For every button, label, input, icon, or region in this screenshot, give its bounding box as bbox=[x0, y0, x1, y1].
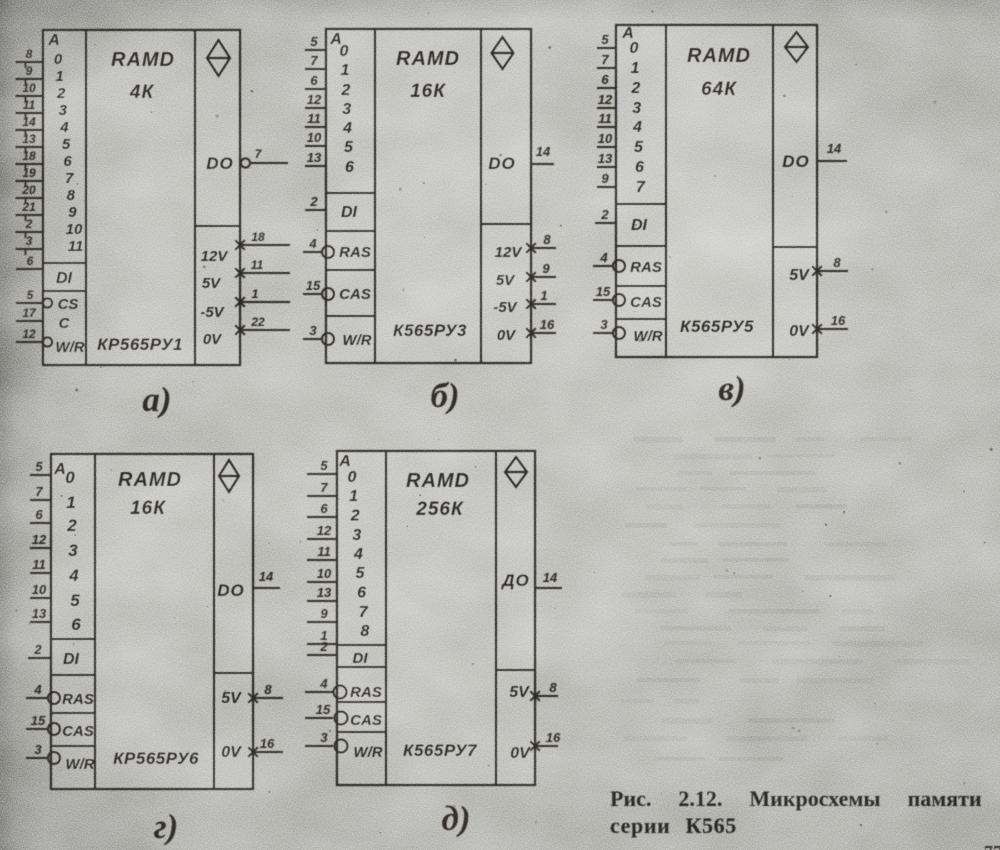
svg-text:5: 5 bbox=[62, 136, 71, 153]
svg-text:RAS: RAS bbox=[630, 259, 662, 276]
svg-text:16К: 16К bbox=[130, 498, 166, 519]
svg-text:9: 9 bbox=[542, 261, 550, 276]
svg-text:а): а) bbox=[142, 380, 171, 419]
svg-text:64К: 64К bbox=[701, 79, 737, 100]
svg-text:A: A bbox=[338, 453, 351, 470]
svg-text:3: 3 bbox=[342, 101, 351, 118]
svg-text:RAMD: RAMD bbox=[118, 469, 182, 491]
svg-text:12: 12 bbox=[598, 92, 613, 107]
svg-text:0: 0 bbox=[340, 43, 349, 60]
svg-text:3: 3 bbox=[26, 234, 33, 248]
svg-text:CAS: CAS bbox=[339, 286, 371, 303]
svg-text:7: 7 bbox=[601, 52, 609, 67]
svg-text:16: 16 bbox=[260, 736, 275, 751]
svg-text:6: 6 bbox=[310, 73, 318, 88]
svg-text:12V: 12V bbox=[201, 248, 230, 265]
svg-text:A: A bbox=[47, 32, 60, 49]
svg-text:13: 13 bbox=[32, 606, 47, 621]
svg-text:RAS: RAS bbox=[62, 691, 94, 708]
svg-text:2: 2 bbox=[56, 85, 66, 102]
svg-text:2: 2 bbox=[630, 80, 640, 97]
svg-text:8: 8 bbox=[67, 187, 76, 204]
svg-text:КР565РУ1: КР565РУ1 bbox=[97, 335, 183, 354]
svg-text:DO: DO bbox=[782, 152, 810, 171]
svg-text:6: 6 bbox=[357, 585, 366, 602]
svg-text:2: 2 bbox=[600, 207, 609, 222]
svg-text:11: 11 bbox=[251, 258, 264, 272]
svg-text:3: 3 bbox=[309, 323, 317, 338]
svg-text:1: 1 bbox=[540, 288, 547, 303]
svg-text:3: 3 bbox=[59, 102, 68, 119]
svg-text:W/R: W/R bbox=[342, 332, 371, 349]
svg-text:3: 3 bbox=[632, 100, 641, 117]
svg-text:13: 13 bbox=[317, 585, 332, 600]
svg-text:12: 12 bbox=[307, 92, 322, 107]
svg-text:К565РУ3: К565РУ3 bbox=[393, 321, 467, 340]
svg-text:4: 4 bbox=[59, 119, 69, 136]
svg-text:2: 2 bbox=[25, 217, 33, 231]
svg-text:W/R: W/R bbox=[55, 339, 84, 356]
svg-text:Рис. 2.12. Микросхемы памяти: Рис. 2.12. Микросхемы памяти bbox=[610, 786, 982, 811]
svg-text:DO: DO bbox=[488, 154, 516, 173]
svg-text:7: 7 bbox=[636, 179, 646, 196]
svg-text:8: 8 bbox=[549, 680, 557, 695]
svg-text:6: 6 bbox=[345, 159, 354, 176]
svg-text:2: 2 bbox=[309, 194, 318, 209]
svg-text:8: 8 bbox=[833, 255, 841, 270]
svg-text:22: 22 bbox=[250, 315, 265, 329]
svg-text:7: 7 bbox=[310, 53, 318, 68]
svg-text:11: 11 bbox=[307, 111, 321, 126]
svg-text:6: 6 bbox=[35, 507, 43, 522]
svg-text:серии К565: серии К565 bbox=[610, 813, 737, 838]
svg-text:2: 2 bbox=[319, 639, 328, 654]
svg-text:DI: DI bbox=[353, 650, 369, 667]
svg-text:3: 3 bbox=[68, 541, 78, 560]
svg-text:RAS: RAS bbox=[339, 244, 371, 261]
svg-text:11: 11 bbox=[23, 98, 36, 112]
svg-text:К565РУ5: К565РУ5 bbox=[680, 317, 754, 336]
svg-text:0V: 0V bbox=[510, 745, 531, 762]
svg-text:0V: 0V bbox=[497, 327, 517, 344]
svg-text:д): д) bbox=[441, 799, 470, 838]
svg-text:8: 8 bbox=[264, 682, 272, 697]
svg-text:5: 5 bbox=[27, 288, 34, 302]
svg-text:RAS: RAS bbox=[350, 684, 382, 701]
svg-text:W/R: W/R bbox=[353, 744, 382, 761]
svg-text:5: 5 bbox=[320, 458, 328, 473]
svg-text:DI: DI bbox=[341, 204, 358, 221]
svg-text:5: 5 bbox=[634, 139, 644, 156]
svg-text:RAMD: RAMD bbox=[406, 470, 470, 492]
svg-text:11: 11 bbox=[598, 111, 612, 126]
svg-text:10: 10 bbox=[317, 566, 332, 581]
svg-text:12: 12 bbox=[22, 327, 36, 341]
svg-text:14: 14 bbox=[536, 144, 551, 159]
svg-text:13: 13 bbox=[598, 151, 613, 166]
svg-text:7: 7 bbox=[320, 480, 328, 495]
svg-text:1: 1 bbox=[340, 62, 349, 79]
svg-text:11: 11 bbox=[32, 557, 46, 572]
svg-text:12: 12 bbox=[317, 523, 332, 538]
svg-text:7: 7 bbox=[35, 484, 43, 499]
svg-text:10: 10 bbox=[32, 582, 47, 597]
svg-text:A: A bbox=[53, 461, 66, 478]
svg-text:5: 5 bbox=[356, 565, 366, 582]
svg-text:15: 15 bbox=[596, 284, 611, 299]
svg-text:DI: DI bbox=[63, 651, 80, 668]
svg-text:КР565РУ6: КР565РУ6 bbox=[113, 749, 199, 768]
svg-text:18: 18 bbox=[251, 230, 265, 244]
svg-text:0V: 0V bbox=[203, 331, 223, 348]
svg-text:6: 6 bbox=[27, 254, 34, 268]
svg-text:4: 4 bbox=[319, 676, 328, 691]
svg-text:15: 15 bbox=[306, 278, 321, 293]
svg-text:5V: 5V bbox=[202, 275, 222, 292]
svg-text:10: 10 bbox=[598, 131, 613, 146]
svg-text:-5V: -5V bbox=[200, 304, 225, 321]
svg-text:2: 2 bbox=[33, 642, 42, 657]
svg-text:0V: 0V bbox=[789, 323, 810, 340]
svg-text:3: 3 bbox=[600, 317, 608, 332]
svg-text:11: 11 bbox=[68, 238, 84, 255]
svg-text:4: 4 bbox=[353, 546, 363, 563]
svg-text:5: 5 bbox=[601, 32, 609, 47]
svg-text:DO: DO bbox=[206, 154, 234, 173]
svg-text:4: 4 bbox=[342, 120, 352, 137]
svg-text:5: 5 bbox=[35, 459, 43, 474]
svg-text:1: 1 bbox=[66, 493, 75, 512]
svg-text:12: 12 bbox=[32, 532, 47, 547]
svg-text:б): б) bbox=[430, 376, 459, 415]
svg-text:16: 16 bbox=[546, 730, 561, 745]
svg-text:ДО: ДО bbox=[500, 571, 530, 590]
svg-text:8: 8 bbox=[543, 232, 551, 247]
svg-text:CAS: CAS bbox=[62, 723, 94, 740]
svg-text:16К: 16К bbox=[410, 81, 446, 102]
svg-text:7: 7 bbox=[65, 170, 74, 187]
svg-text:RAMD: RAMD bbox=[111, 49, 175, 71]
svg-text:9: 9 bbox=[68, 204, 77, 221]
svg-text:4: 4 bbox=[33, 682, 42, 697]
svg-text:4: 4 bbox=[599, 250, 608, 265]
svg-text:W/R: W/R bbox=[633, 328, 662, 345]
svg-text:5V: 5V bbox=[221, 690, 242, 707]
svg-text:6: 6 bbox=[71, 615, 81, 634]
svg-text:0: 0 bbox=[630, 40, 639, 57]
svg-text:0: 0 bbox=[54, 51, 63, 68]
svg-text:0: 0 bbox=[348, 469, 357, 486]
svg-text:5: 5 bbox=[310, 34, 318, 49]
svg-text:0: 0 bbox=[65, 468, 75, 487]
svg-text:1: 1 bbox=[55, 68, 63, 85]
svg-text:г): г) bbox=[154, 807, 179, 846]
svg-text:19: 19 bbox=[22, 166, 36, 180]
svg-text:8: 8 bbox=[26, 47, 33, 61]
svg-text:14: 14 bbox=[543, 570, 558, 585]
svg-text:0V: 0V bbox=[221, 744, 242, 761]
svg-text:DI: DI bbox=[631, 217, 648, 234]
svg-text:6: 6 bbox=[635, 159, 644, 176]
svg-text:15: 15 bbox=[316, 702, 331, 717]
svg-text:13: 13 bbox=[22, 132, 36, 146]
svg-text:16: 16 bbox=[540, 317, 555, 332]
svg-text:4: 4 bbox=[308, 236, 317, 251]
svg-text:CS: CS bbox=[58, 296, 79, 313]
svg-text:5V: 5V bbox=[496, 272, 516, 289]
svg-text:10: 10 bbox=[66, 221, 83, 238]
svg-text:4: 4 bbox=[632, 119, 642, 136]
svg-text:77: 77 bbox=[984, 842, 1000, 850]
svg-text:7: 7 bbox=[255, 147, 263, 161]
svg-text:3: 3 bbox=[320, 730, 328, 745]
svg-text:DI: DI bbox=[56, 270, 73, 287]
svg-text:14: 14 bbox=[259, 569, 274, 584]
svg-text:9: 9 bbox=[26, 64, 33, 78]
svg-text:9: 9 bbox=[601, 171, 609, 186]
svg-text:2: 2 bbox=[66, 516, 77, 535]
svg-text:6: 6 bbox=[601, 72, 609, 87]
svg-text:14: 14 bbox=[827, 141, 842, 156]
svg-text:W/R: W/R bbox=[65, 756, 94, 773]
svg-text:20: 20 bbox=[21, 183, 36, 197]
svg-text:6: 6 bbox=[63, 153, 72, 170]
svg-text:4К: 4К bbox=[129, 82, 155, 103]
svg-text:16: 16 bbox=[831, 313, 846, 328]
svg-text:1: 1 bbox=[349, 488, 358, 505]
svg-text:6: 6 bbox=[320, 501, 328, 516]
svg-text:12V: 12V bbox=[495, 244, 524, 261]
svg-text:18: 18 bbox=[22, 149, 36, 163]
svg-text:CAS: CAS bbox=[630, 294, 662, 311]
svg-text:5V: 5V bbox=[789, 267, 810, 284]
svg-text:5V: 5V bbox=[509, 684, 530, 701]
svg-text:2: 2 bbox=[340, 82, 350, 99]
svg-text:9: 9 bbox=[320, 606, 328, 621]
svg-text:в): в) bbox=[718, 369, 745, 408]
svg-text:2: 2 bbox=[350, 508, 360, 525]
svg-text:3: 3 bbox=[34, 742, 42, 757]
svg-text:17: 17 bbox=[22, 306, 37, 320]
svg-text:15: 15 bbox=[31, 713, 46, 728]
svg-text:3: 3 bbox=[352, 527, 361, 544]
svg-text:10: 10 bbox=[307, 130, 322, 145]
svg-text:RAMD: RAMD bbox=[396, 48, 460, 70]
svg-text:13: 13 bbox=[307, 150, 322, 165]
svg-text:CAS: CAS bbox=[350, 712, 382, 729]
svg-text:21: 21 bbox=[21, 200, 36, 214]
svg-text:1: 1 bbox=[630, 60, 639, 77]
svg-text:RAMD: RAMD bbox=[687, 45, 751, 67]
svg-text:256К: 256К bbox=[415, 499, 464, 520]
svg-text:14: 14 bbox=[22, 115, 36, 129]
svg-text:5: 5 bbox=[70, 591, 80, 610]
svg-text:10: 10 bbox=[22, 81, 36, 95]
svg-text:C: C bbox=[59, 315, 71, 332]
svg-text:7: 7 bbox=[359, 604, 369, 621]
svg-text:11: 11 bbox=[317, 544, 331, 559]
svg-text:1: 1 bbox=[252, 287, 259, 301]
svg-text:5: 5 bbox=[344, 139, 354, 156]
svg-text:8: 8 bbox=[360, 623, 369, 640]
svg-text:4: 4 bbox=[68, 566, 79, 585]
svg-text:-5V: -5V bbox=[493, 299, 518, 316]
svg-text:DO: DO bbox=[217, 581, 245, 600]
svg-text:К565РУ7: К565РУ7 bbox=[403, 741, 478, 760]
